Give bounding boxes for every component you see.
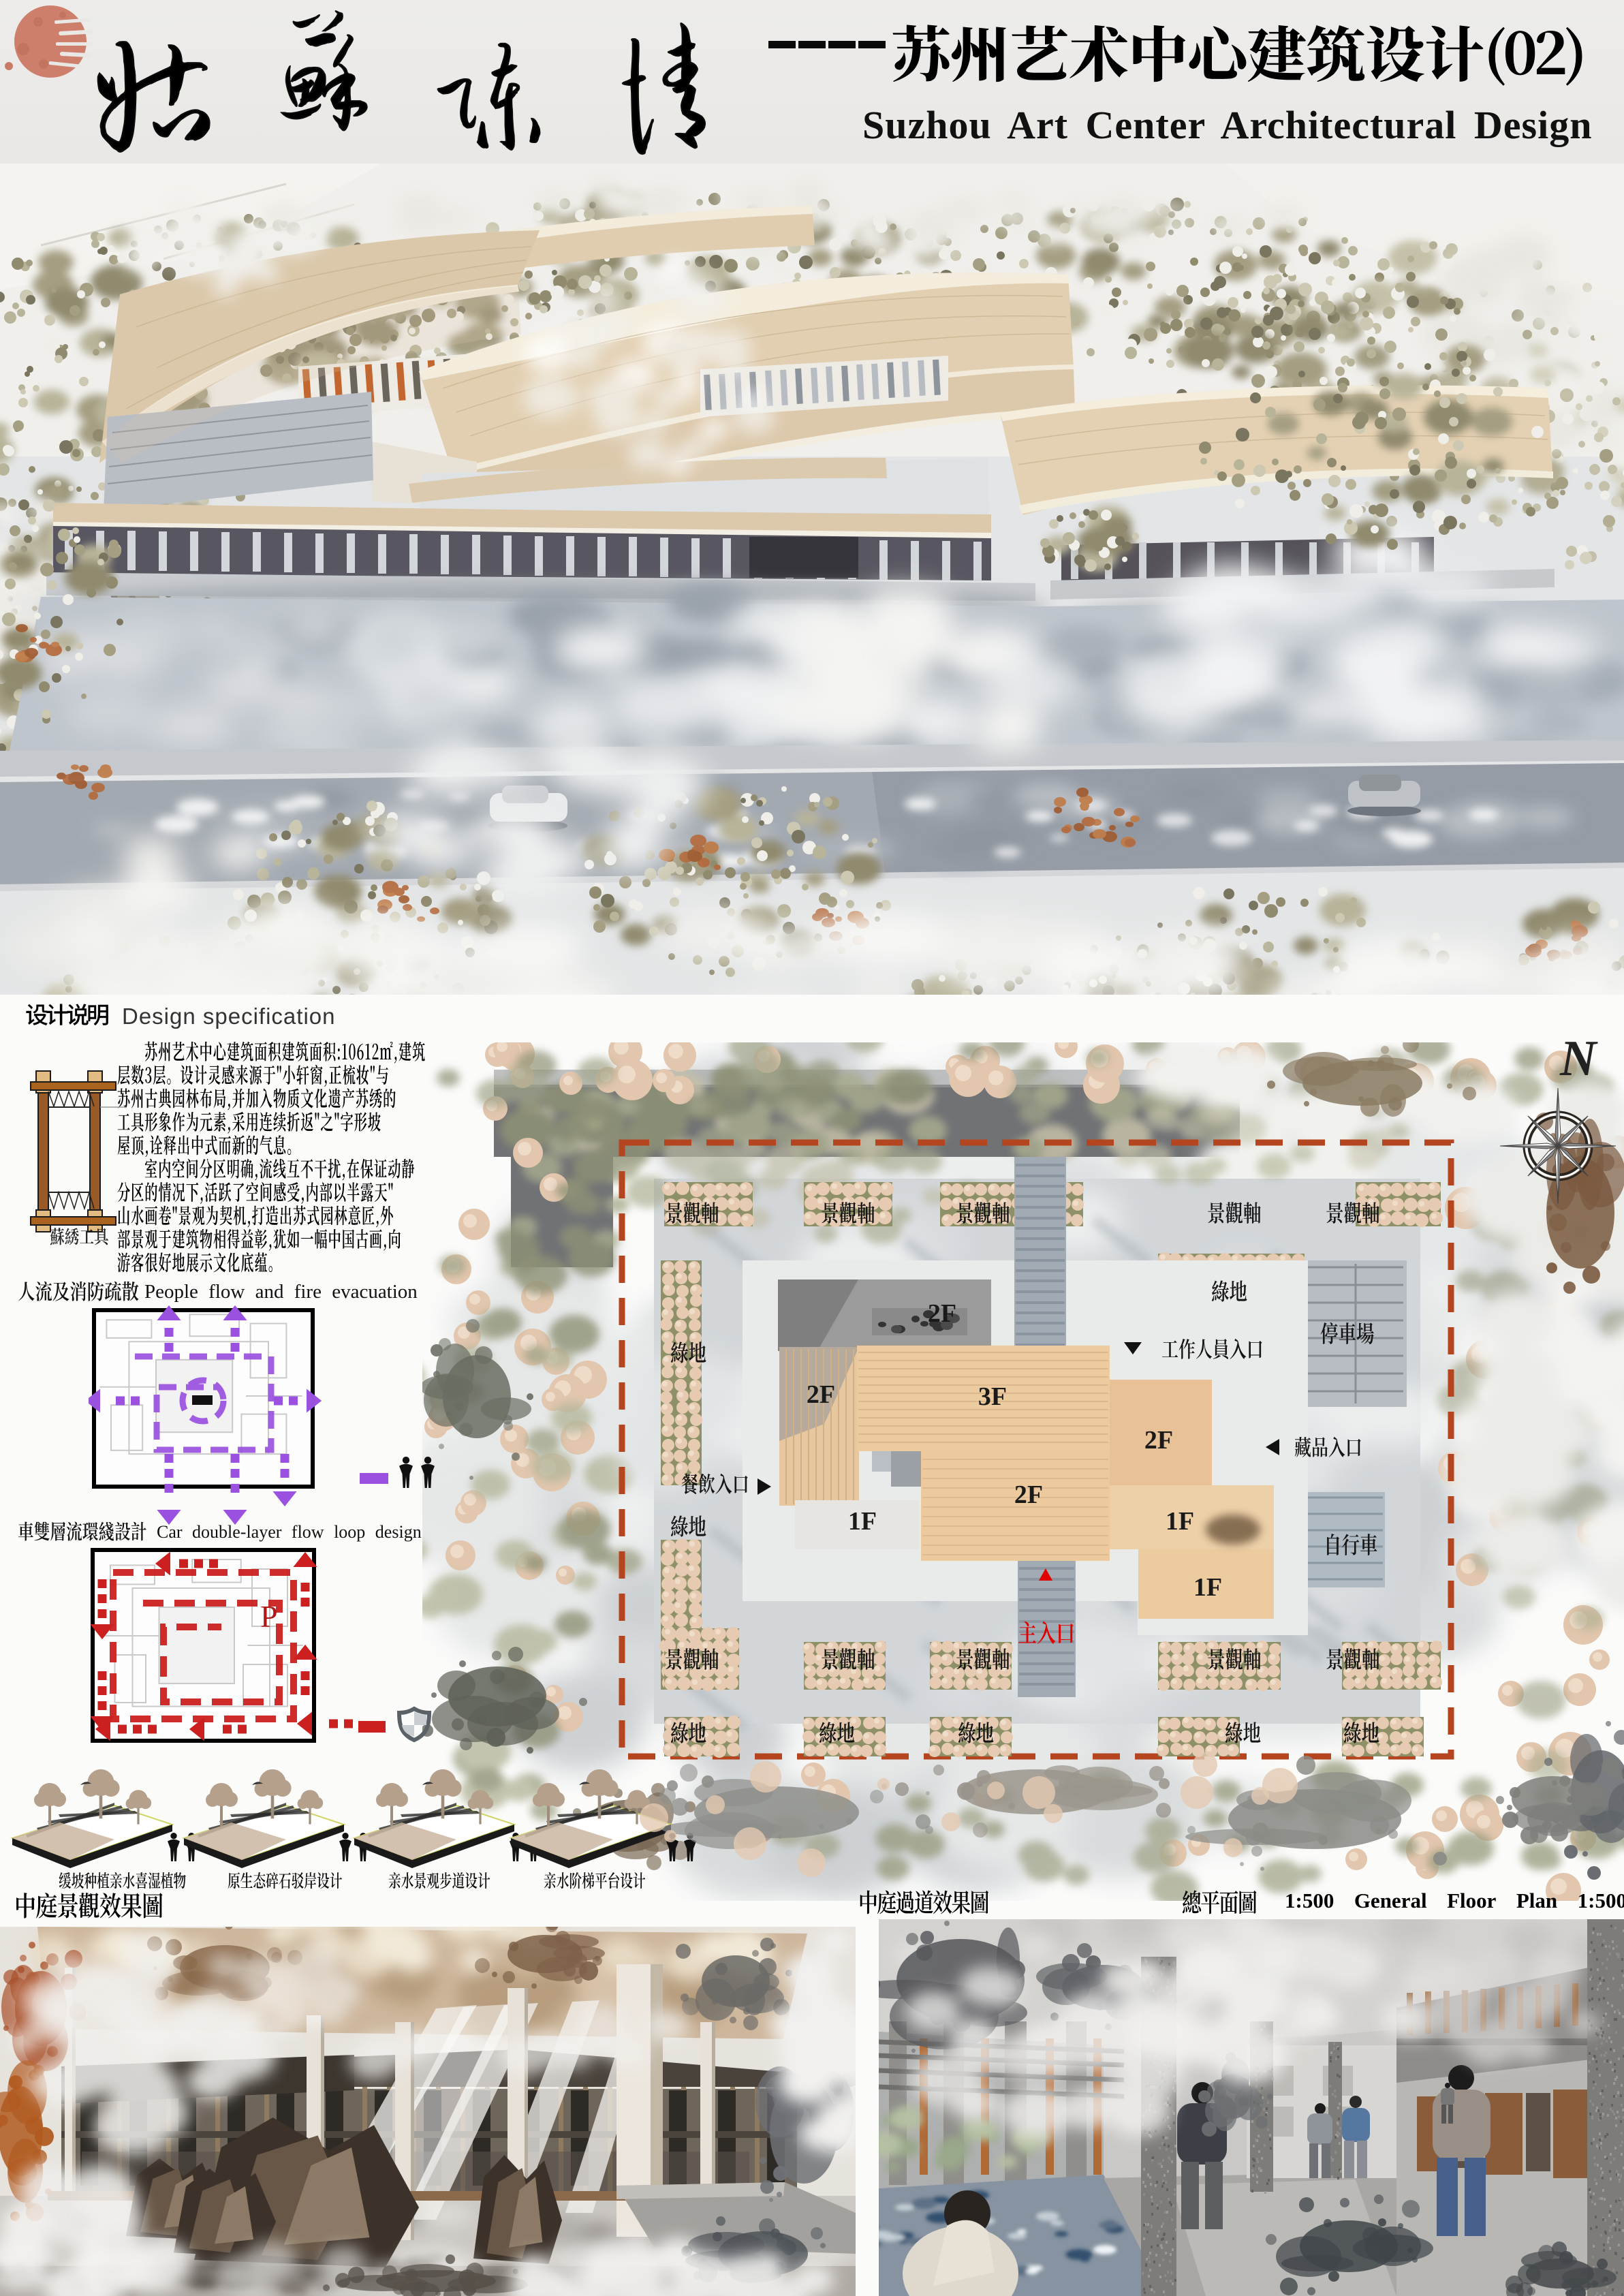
- svg-text:P: P: [260, 1599, 278, 1634]
